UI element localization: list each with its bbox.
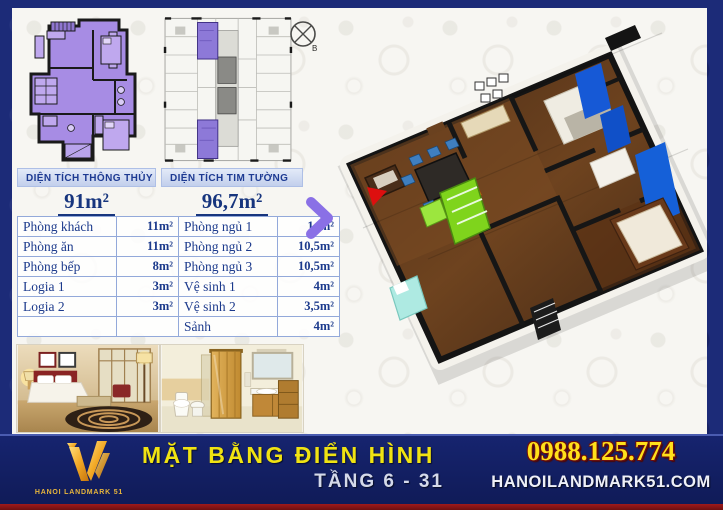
apartment-3d-plan xyxy=(305,8,707,434)
room-value: 3m² xyxy=(117,277,179,297)
building-key-plan-drawing xyxy=(163,16,295,164)
footer-title-block: MẶT BẰNG ĐIỂN HÌNH TẦNG 6 - 31 xyxy=(142,442,472,493)
room-area-table: Phòng khách 11m² Phòng ngủ 1 14m² Phòng … xyxy=(17,216,340,337)
floor-range-subtitle: TẦNG 6 - 31 xyxy=(142,471,472,493)
room-label: Phòng bếp xyxy=(18,257,117,277)
table-row: Phòng ăn 11m² Phòng ngủ 2 10,5m² xyxy=(18,237,340,257)
room-label: Vệ sinh 2 xyxy=(179,297,278,317)
room-value: 11m² xyxy=(117,237,179,257)
room-value: 8m² xyxy=(117,257,179,277)
room-label xyxy=(18,317,117,337)
area-value-tim-tuong: 96,7m² xyxy=(161,189,303,214)
footer-bar: HANOI LANDMARK 51 MẶT BẰNG ĐIỂN HÌNH TẦN… xyxy=(0,434,723,504)
unit-2d-floor-plan xyxy=(18,16,155,166)
table-row: Logia 2 3m² Vệ sinh 2 3,5m² xyxy=(18,297,340,317)
footer-contact-block: 0988.125.774 HANOILANDMARK51.COM xyxy=(487,436,715,492)
room-label: Logia 1 xyxy=(18,277,117,297)
flyer-content-area: B DIỆN TÍCH THÔNG THỦY DIỆN TÍCH TIM TƯỜ… xyxy=(12,8,707,434)
room-label: Phòng khách xyxy=(18,217,117,237)
room-value: 11m² xyxy=(117,217,179,237)
hanoi-landmark-logo: HANOI LANDMARK 51 xyxy=(24,439,134,496)
table-row: Phòng bếp 8m² Phòng ngủ 3 10,5m² xyxy=(18,257,340,277)
room-label: Logia 2 xyxy=(18,297,117,317)
table-row: Phòng khách 11m² Phòng ngủ 1 14m² xyxy=(18,217,340,237)
website-url: HANOILANDMARK51.COM xyxy=(487,473,715,492)
table-row: Sảnh 4m² xyxy=(18,317,340,337)
area-header-tim-tuong: DIỆN TÍCH TIM TƯỜNG xyxy=(161,168,303,187)
room-label: Sảnh xyxy=(179,317,278,337)
room-label: Phòng ngủ 3 xyxy=(179,257,278,277)
bottom-red-strip xyxy=(0,504,723,510)
landmark-51-logo-icon xyxy=(47,439,111,483)
logo-text: HANOI LANDMARK 51 xyxy=(24,489,134,496)
room-label: Phòng ăn xyxy=(18,237,117,257)
apartment-3d-plan-drawing xyxy=(305,8,707,434)
area-value-thong-thuy: 91m² xyxy=(17,189,156,214)
area-value-thong-thuy-text: 91m² xyxy=(58,189,115,216)
room-label: Vệ sinh 1 xyxy=(179,277,278,297)
area-header-thong-thuy: DIỆN TÍCH THÔNG THỦY xyxy=(17,168,156,187)
bedroom-photo xyxy=(17,345,159,432)
room-value xyxy=(117,317,179,337)
room-value: 3m² xyxy=(117,297,179,317)
bedroom-photo-drawing xyxy=(17,345,159,432)
building-key-plan xyxy=(163,16,295,164)
area-value-tim-tuong-text: 96,7m² xyxy=(196,189,269,216)
table-row: Logia 1 3m² Vệ sinh 1 4m² xyxy=(18,277,340,297)
page-title: MẶT BẰNG ĐIỂN HÌNH xyxy=(142,442,472,469)
room-label: Phòng ngủ 1 xyxy=(179,217,278,237)
bathroom-photo-drawing xyxy=(161,345,303,432)
highlighted-unit-bottom xyxy=(198,120,218,159)
room-label: Phòng ngủ 2 xyxy=(179,237,278,257)
unit-2d-floor-plan-drawing xyxy=(18,16,155,166)
bathroom-photo xyxy=(161,345,303,432)
phone-number: 0988.125.774 xyxy=(487,436,715,467)
